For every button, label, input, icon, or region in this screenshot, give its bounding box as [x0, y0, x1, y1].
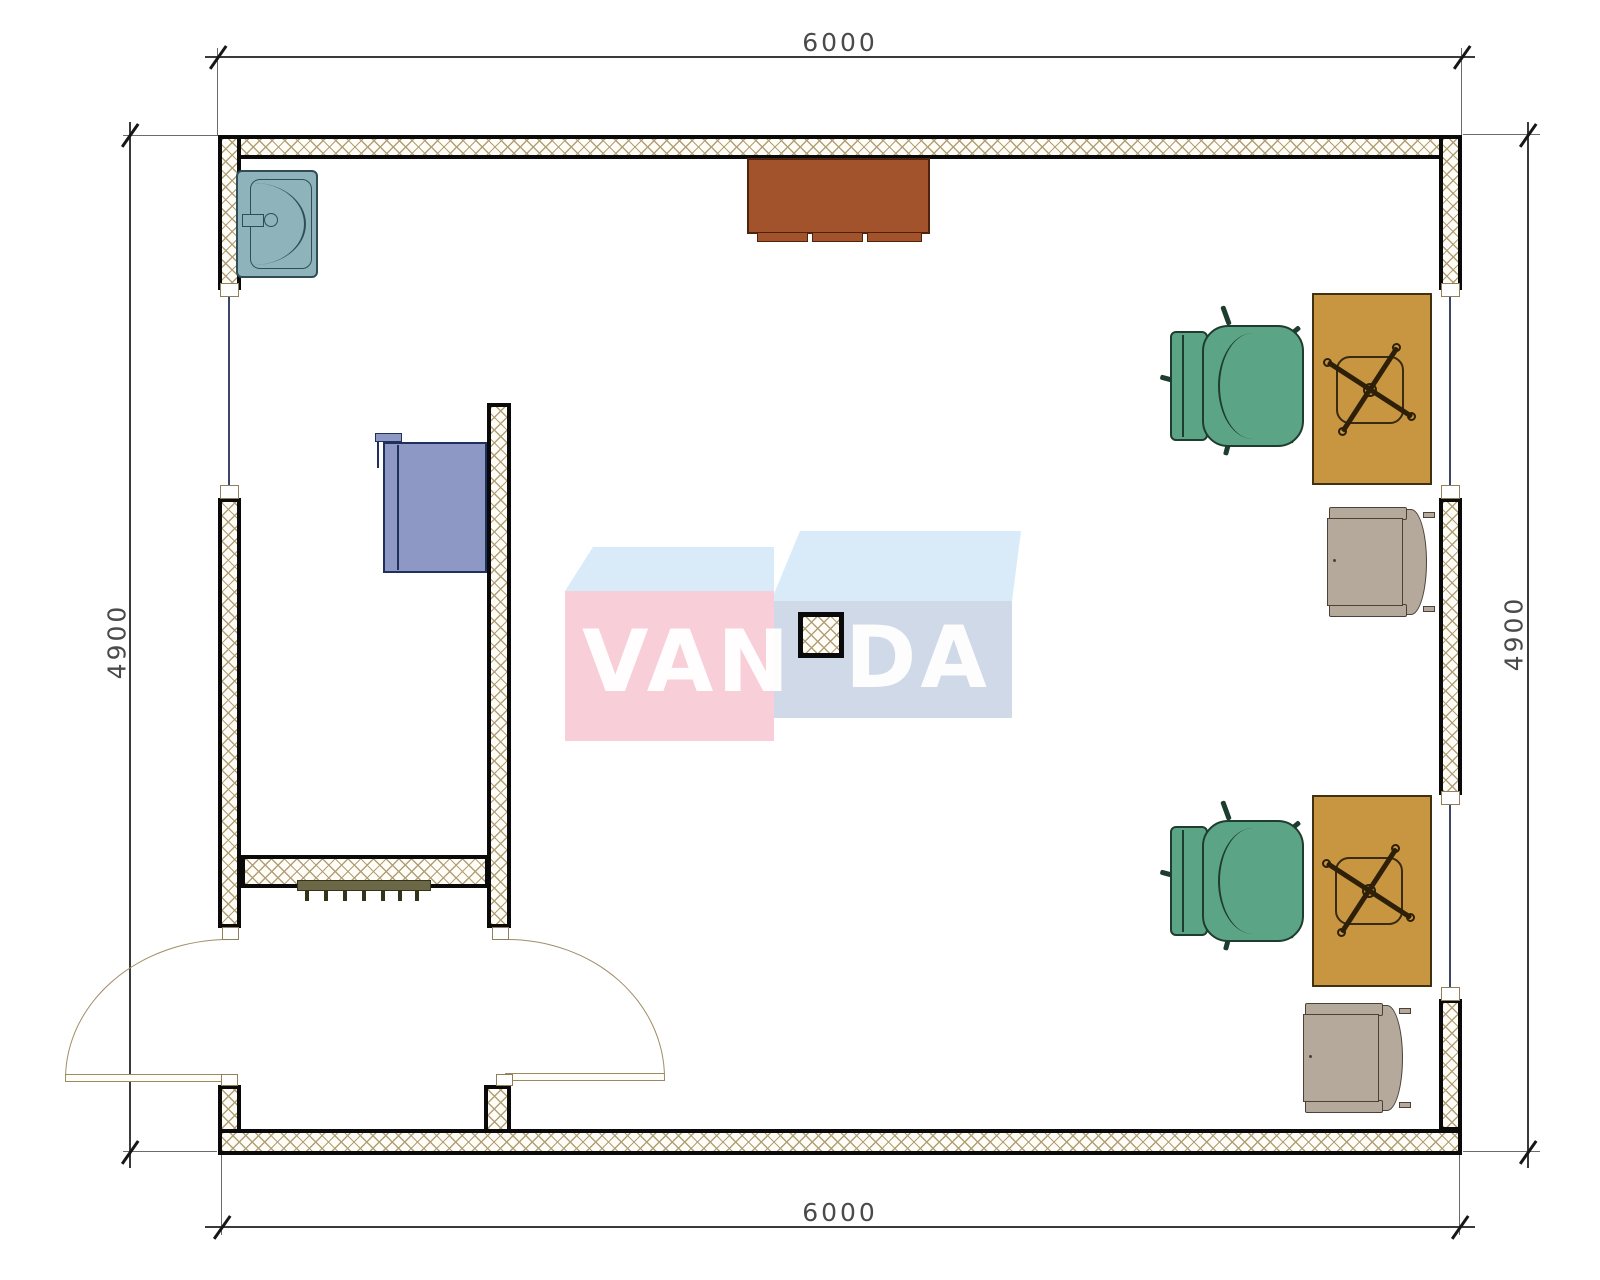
- swivel-caster: [1338, 427, 1347, 436]
- task-chair-upper: [1166, 315, 1310, 454]
- wall-table: [747, 158, 930, 243]
- wall-table-foot: [812, 232, 863, 242]
- dimension-label-bottom: 6000: [760, 1198, 920, 1227]
- witness-line: [123, 135, 218, 136]
- armchair-foot: [1423, 512, 1435, 518]
- watermark-box-left-top: [565, 547, 774, 591]
- wall-table-foot: [867, 232, 922, 242]
- wall-left-vestibule: [218, 498, 241, 928]
- window-left-glazing: [228, 297, 230, 485]
- chair-seat-curve: [1218, 828, 1288, 934]
- task-chair-lower: [1166, 810, 1310, 949]
- door-frame-block: [492, 927, 509, 940]
- door-frame-block: [496, 1074, 513, 1086]
- swivel-caster: [1337, 928, 1346, 937]
- wall-left-door-jamb: [218, 1085, 241, 1133]
- armchair-dot: [1309, 1055, 1312, 1058]
- window-frame-block: [1441, 791, 1460, 805]
- window-right-upper-glazing: [1449, 297, 1451, 485]
- wall-right-middle: [1439, 498, 1462, 795]
- wall-right-door-jamb: [484, 1085, 511, 1133]
- swivel-hub: [1362, 884, 1376, 898]
- chair-caster: [1220, 800, 1232, 821]
- dimension-label-left: 4900: [103, 597, 132, 687]
- window-frame-block: [220, 283, 239, 297]
- armchair-lower: [1303, 1003, 1415, 1113]
- swivel-chair-base-lower: [1317, 839, 1421, 943]
- swivel-caster: [1322, 859, 1331, 868]
- watermark-box-right-top: [770, 531, 1021, 601]
- radiator-fin: [415, 891, 419, 901]
- interior-door-swing-arc: [507, 939, 665, 1078]
- armchair-seat: [1303, 1014, 1379, 1102]
- sink-faucet: [242, 214, 264, 227]
- wall-right-lower: [1439, 999, 1462, 1131]
- armchair-foot: [1399, 1008, 1411, 1014]
- column: [798, 612, 844, 658]
- armchair-dot: [1333, 559, 1336, 562]
- radiator-fin: [305, 891, 309, 901]
- floor-plan: VAN DA 6000 6000 4900 4900: [0, 0, 1600, 1280]
- door-frame-block: [221, 1074, 238, 1086]
- entrance-door-swing-arc: [65, 939, 229, 1079]
- cabinet-door-line: [397, 445, 399, 570]
- cabinet-body: [383, 442, 487, 573]
- chair-caster: [1220, 305, 1232, 326]
- radiator-fin: [381, 891, 385, 901]
- swivel-caster: [1392, 343, 1401, 352]
- wall-table-top: [747, 158, 930, 234]
- watermark-text-da: DA: [845, 608, 991, 708]
- radiator: [297, 880, 431, 902]
- swivel-chair-base-upper: [1318, 338, 1422, 442]
- wardrobe-cabinet: [375, 433, 491, 573]
- swivel-hub: [1363, 383, 1377, 397]
- armchair-foot: [1423, 606, 1435, 612]
- watermark-text-van: VAN: [582, 612, 793, 712]
- swivel-caster: [1407, 412, 1416, 421]
- radiator-fin: [362, 891, 366, 901]
- armchair-seat: [1327, 518, 1403, 606]
- witness-line: [1461, 48, 1462, 135]
- armchair-upper: [1327, 507, 1439, 617]
- cabinet-hinge-line: [377, 442, 379, 468]
- chair-back-line: [1182, 335, 1184, 437]
- sink: [236, 170, 318, 278]
- wall-bottom: [218, 1129, 1462, 1155]
- swivel-caster: [1391, 844, 1400, 853]
- wall-table-foot: [757, 232, 808, 242]
- radiator-fin: [343, 891, 347, 901]
- dimension-label-top: 6000: [760, 28, 920, 57]
- wall-top: [218, 135, 1462, 159]
- window-right-lower-glazing: [1449, 805, 1451, 987]
- window-frame-block: [1441, 485, 1460, 499]
- window-frame-block: [1441, 283, 1460, 297]
- chair-seat-curve: [1218, 333, 1288, 439]
- window-frame-block: [1441, 987, 1460, 1001]
- door-frame-block: [222, 927, 239, 940]
- chair-back-line: [1182, 830, 1184, 932]
- armchair-foot: [1399, 1102, 1411, 1108]
- swivel-caster: [1323, 358, 1332, 367]
- window-frame-block: [220, 485, 239, 499]
- radiator-fin: [324, 891, 328, 901]
- swivel-caster: [1406, 913, 1415, 922]
- dimension-label-right: 4900: [1500, 589, 1529, 679]
- witness-line: [217, 48, 218, 135]
- sink-faucet-knob: [264, 213, 278, 227]
- wall-right-upper: [1439, 135, 1462, 290]
- radiator-fin: [398, 891, 402, 901]
- witness-line: [123, 1151, 217, 1152]
- radiator-bar: [297, 880, 431, 891]
- cabinet-hinge-bar: [375, 433, 402, 442]
